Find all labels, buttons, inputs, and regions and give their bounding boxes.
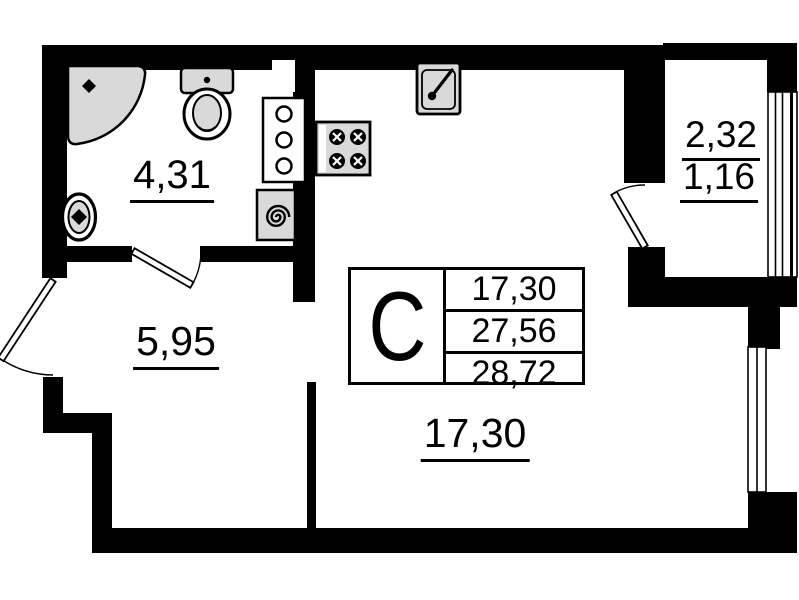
unit-area-total-with-balcony: 28,72	[446, 354, 582, 393]
balcony-window	[768, 92, 797, 277]
kitchen-sink-icon	[417, 63, 460, 114]
bathroom-door	[131, 248, 201, 288]
shaft-notch	[272, 60, 295, 92]
floor-plan: 4,31 5,95 17,30 2,32 1,16 С 17,30 27,56 …	[0, 0, 799, 600]
area-label-balcony-reduced: 1,16	[680, 158, 758, 203]
unit-area-living: 17,30	[446, 270, 582, 312]
wall-step	[43, 413, 112, 433]
pipe-icon	[277, 159, 292, 174]
area-label-bathroom: 4,31	[130, 155, 214, 203]
wall-bath-bottom-left	[65, 246, 132, 262]
entrance-door	[0, 278, 56, 375]
door-leaf	[0, 278, 56, 361]
wall-partition-lower	[307, 382, 316, 528]
door-leaf	[611, 192, 648, 249]
living-room-window	[748, 347, 766, 492]
unit-area-table: 17,30 27,56 28,72	[446, 270, 582, 382]
unit-info-card: С 17,30 27,56 28,72	[348, 267, 585, 385]
pipe-icon	[277, 133, 292, 148]
wall-bottom	[92, 528, 797, 553]
pipe-icon	[277, 107, 292, 122]
wall-corner-bottom-right	[748, 492, 797, 553]
corner-bathtub-icon	[68, 66, 145, 144]
area-label-hallway: 5,95	[133, 321, 219, 370]
wall-balcony-divider-upper	[624, 45, 665, 183]
wall-left-lower	[92, 433, 112, 533]
unit-area-total: 27,56	[446, 312, 582, 354]
area-label-balcony-total: 2,32	[682, 116, 760, 161]
door-swing-arc	[1, 359, 53, 375]
stove-icon	[316, 122, 370, 175]
door-swing-arc	[192, 251, 201, 285]
wall-right-mid-block	[748, 307, 780, 349]
toilet-icon	[181, 68, 233, 139]
unit-type-letter: С	[351, 270, 446, 382]
bathroom-sink-icon	[63, 194, 96, 240]
washing-machine-icon	[257, 190, 295, 240]
door-swing-arc	[614, 185, 645, 193]
wall-entry-jamb	[43, 377, 63, 417]
wall-corner-top-right	[767, 43, 797, 92]
area-label-living-room: 17,30	[421, 413, 530, 462]
door-leaf	[131, 248, 193, 288]
balcony-door	[611, 185, 648, 249]
wall-left-upper	[42, 45, 67, 278]
wall-balcony-divider-lower	[628, 247, 665, 287]
wall-bath-bottom-right	[200, 246, 315, 262]
